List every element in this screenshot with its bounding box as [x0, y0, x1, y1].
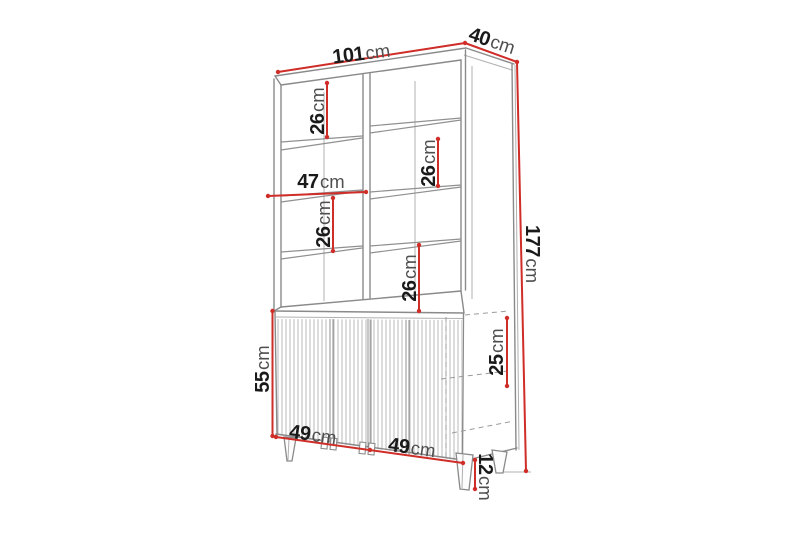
dim-label-inner-width: 47cm — [297, 171, 344, 193]
dim-label-shelf-right-lower: 26cm — [399, 254, 421, 301]
dim-label-leg-height: 12cm — [474, 453, 496, 500]
front-right-leg — [456, 453, 473, 490]
dim-label-width: 101cm — [331, 40, 391, 69]
dim-label-shelf-left-lower: 26cm — [313, 200, 335, 247]
dim-label-sideboard-height: 55cm — [252, 345, 274, 392]
dim-label-shelf-left-upper: 26cm — [307, 87, 329, 134]
dim-label-side-section: 25cm — [486, 328, 508, 375]
furniture-dimension-diagram: 101cm 40cm 177cm 47cm 26cm 26cm 26cm 26c… — [0, 0, 800, 533]
cabinet-diagram-svg: 101cm 40cm 177cm 47cm 26cm 26cm 26cm 26c… — [0, 0, 800, 533]
dim-label-shelf-right-upper: 26cm — [418, 139, 440, 186]
dim-label-height: 177cm — [521, 225, 543, 283]
